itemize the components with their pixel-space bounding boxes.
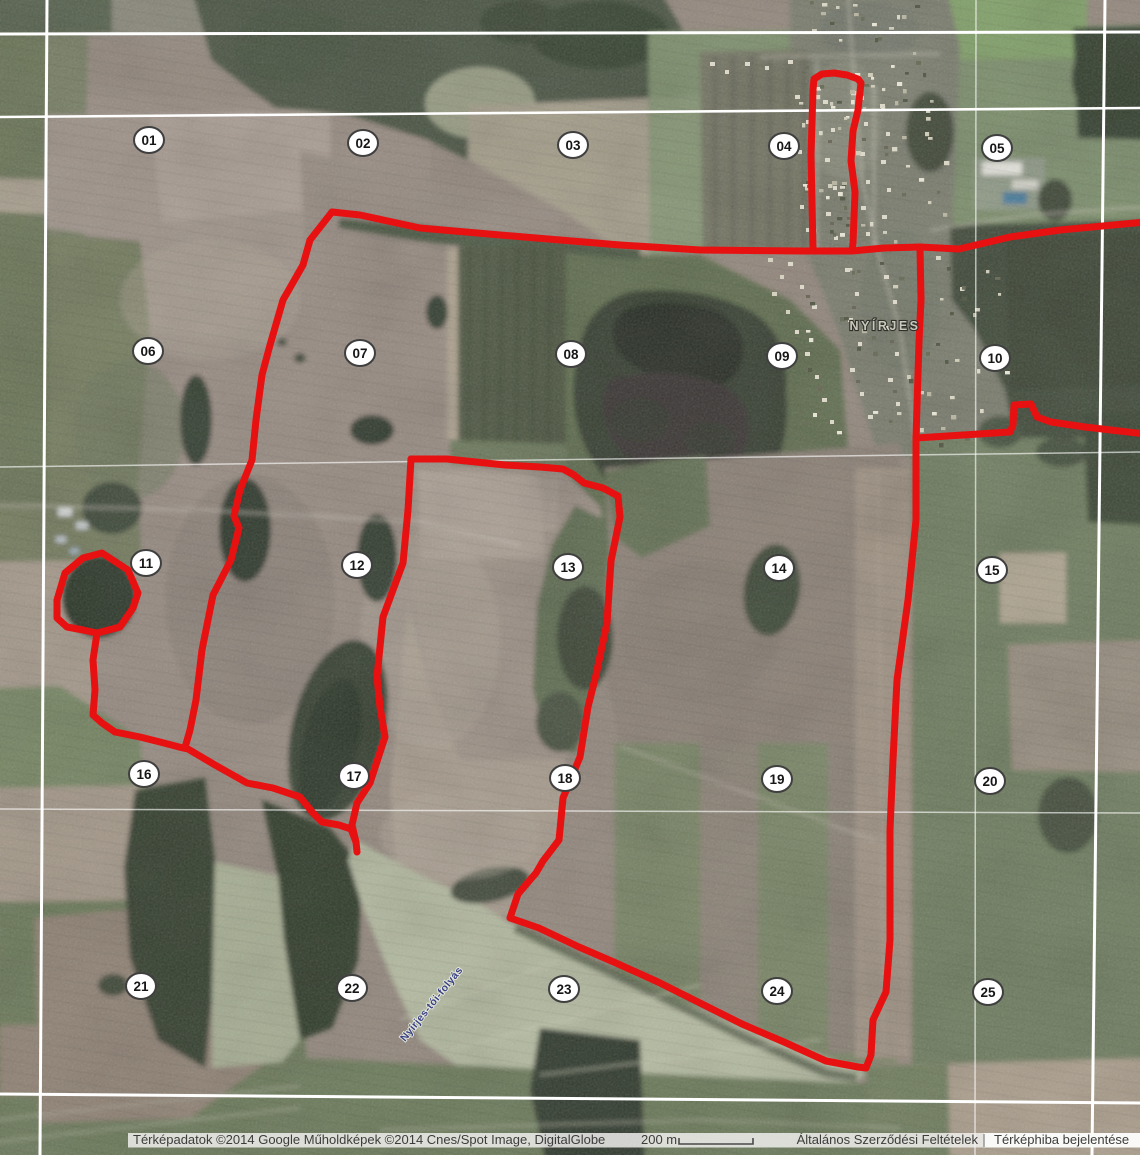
svg-text:07: 07: [352, 346, 367, 361]
svg-text:19: 19: [769, 772, 784, 787]
svg-text:25: 25: [980, 985, 996, 1000]
svg-text:15: 15: [984, 563, 1000, 578]
svg-text:18: 18: [557, 771, 573, 786]
svg-text:01: 01: [141, 133, 157, 148]
svg-text:09: 09: [774, 349, 789, 364]
svg-text:05: 05: [989, 141, 1005, 156]
svg-text:21: 21: [133, 979, 149, 994]
svg-text:17: 17: [346, 769, 361, 784]
svg-text:200 m: 200 m: [641, 1132, 677, 1147]
svg-text:08: 08: [563, 347, 579, 362]
svg-text:22: 22: [344, 981, 359, 996]
svg-text:04: 04: [776, 139, 792, 154]
svg-text:Térképhiba bejelentése: Térképhiba bejelentése: [994, 1132, 1129, 1147]
svg-text:02: 02: [355, 136, 370, 151]
svg-text:12: 12: [349, 558, 364, 573]
svg-text:16: 16: [136, 767, 152, 782]
svg-text:NYÍRJES: NYÍRJES: [850, 318, 921, 333]
svg-text:23: 23: [556, 982, 572, 997]
svg-text:14: 14: [771, 561, 787, 576]
svg-text:24: 24: [769, 984, 785, 999]
svg-text:06: 06: [140, 344, 156, 359]
svg-text:11: 11: [139, 556, 154, 571]
svg-text:13: 13: [560, 560, 576, 575]
svg-text:10: 10: [987, 351, 1002, 366]
svg-text:Általános Szerződési Feltétele: Általános Szerződési Feltételek: [797, 1132, 979, 1147]
svg-text:03: 03: [565, 138, 581, 153]
svg-text:20: 20: [982, 774, 997, 789]
svg-text:Térképadatok ©2014 Google Műho: Térképadatok ©2014 Google Műholdképek ©2…: [133, 1132, 605, 1147]
